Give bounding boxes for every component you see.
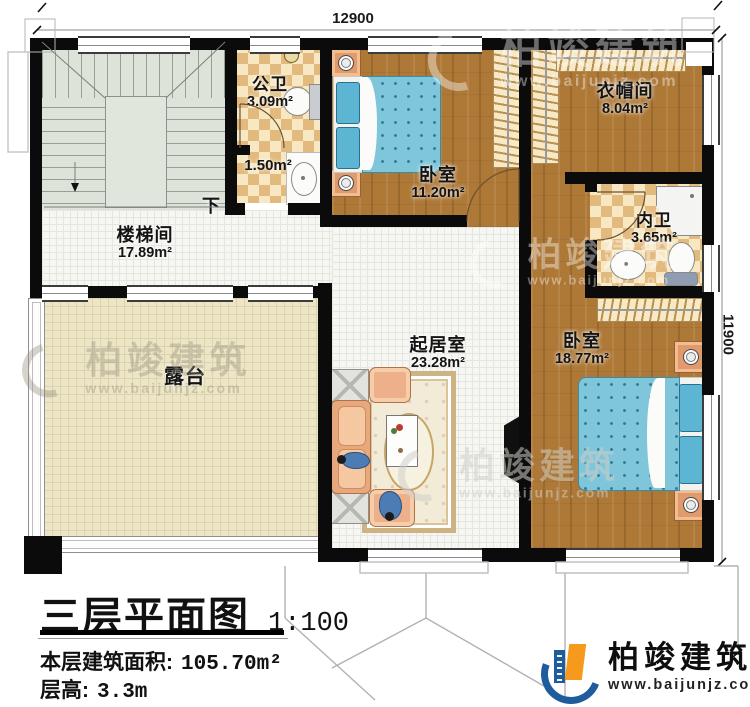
brand-logo: 柏竣建筑 www.baijunjz.com (540, 638, 750, 696)
brand-url: www.baijunjz.com (608, 677, 750, 693)
inner-toilet-bowl-icon (668, 242, 695, 276)
wall-segment (318, 283, 332, 548)
terrace-parapet-bottom (28, 536, 324, 553)
room-label-public-bath: 公卫 3.09m² (238, 76, 302, 111)
bed2-blanket-fold (647, 378, 665, 488)
room-name: 卧室 (400, 166, 476, 186)
terrace-parapet-left (28, 298, 45, 552)
nightstand-icon (331, 49, 361, 77)
window (42, 285, 88, 302)
side-table-icon (331, 491, 369, 524)
wall-segment (519, 38, 531, 548)
dimension-right: 11900 (720, 304, 737, 366)
wall-segment (30, 38, 42, 298)
wall-segment (318, 548, 368, 562)
wall-segment (225, 145, 250, 155)
room-name: 露台 (148, 366, 222, 388)
wall-segment (680, 548, 714, 562)
bedroom1-wardrobe (493, 46, 522, 168)
inner-toilet-base-icon (664, 272, 698, 286)
window (250, 36, 300, 54)
bedroom2-wardrobe (597, 298, 709, 322)
wall-column (24, 536, 62, 574)
window (368, 548, 482, 566)
sofa-cushion (338, 406, 366, 446)
title-underline (40, 630, 284, 635)
wall-segment (233, 286, 248, 298)
pillow-icon (679, 436, 703, 484)
room-label-inner-bath: 内卫 3.65m² (618, 212, 690, 247)
room-label-bedroom1: 卧室 11.20m² (400, 166, 476, 202)
coffee-table (386, 415, 418, 467)
wall-segment (585, 286, 714, 298)
room-label-living-room: 起居室 23.28m² (398, 336, 478, 372)
logo-building-blue-icon (554, 650, 565, 683)
wall-segment (225, 38, 237, 215)
room-label-bedroom2: 卧室 18.77m² (542, 332, 622, 368)
room-area: 8.04m² (575, 102, 675, 118)
wall-segment (288, 203, 332, 215)
floor-area-line: 本层建筑面积:105.70m² (40, 646, 282, 676)
pillow-icon (336, 127, 360, 169)
armchair-icon (369, 367, 411, 403)
flower-decor-dot (396, 424, 403, 431)
floor-area-label: 本层建筑面积: (40, 651, 173, 674)
room-name: 公卫 (238, 76, 302, 95)
room-area: 3.09m² (238, 95, 302, 111)
brand-logo-icon (540, 638, 598, 696)
room-name: 内卫 (618, 212, 690, 231)
wall-segment (585, 172, 597, 192)
wall-segment (482, 548, 566, 562)
title-underline-thin (38, 638, 288, 639)
inner-sink-drain-dot (624, 262, 628, 266)
window (78, 36, 190, 54)
cloakroom-rack-left (532, 44, 559, 164)
teacup-dot (398, 448, 403, 453)
wall-segment (300, 38, 368, 50)
brand-name: 柏竣建筑 (608, 642, 750, 673)
wall-segment (88, 286, 128, 298)
room-area: 1.50m² (238, 158, 298, 175)
room-name: 起居室 (398, 336, 478, 356)
window (368, 36, 482, 54)
sofa (331, 400, 371, 494)
wall-segment (320, 215, 467, 227)
inner-bath-sink-icon (610, 250, 646, 280)
window (248, 285, 313, 302)
window (702, 75, 720, 145)
floor-height-line: 层高:3.3m (40, 674, 147, 704)
terrace-floor (44, 298, 318, 538)
stair-flight-left (42, 98, 105, 204)
window (702, 245, 720, 292)
floor-height-value: 3.3m (97, 681, 147, 704)
room-name: 衣帽间 (575, 82, 675, 102)
wall-segment (482, 38, 714, 50)
room-area: 17.89m² (75, 246, 215, 262)
floor-plan-canvas: 楼梯间 17.89m² 下 公卫 3.09m² 1.50m² 卧室 11.20m… (0, 0, 750, 707)
wall-segment (190, 38, 250, 50)
room-name: 卧室 (542, 332, 622, 352)
room-label-cloakroom: 衣帽间 8.04m² (575, 82, 675, 118)
window (566, 548, 680, 566)
room-name: 楼梯间 (75, 226, 215, 246)
room-area: 3.65m² (618, 231, 690, 247)
pillow-icon (679, 384, 703, 432)
room-label-lobby: 1.50m² (238, 158, 298, 175)
pillow-icon (336, 82, 360, 124)
floor-height-label: 层高: (40, 679, 89, 702)
room-area: 11.20m² (400, 186, 476, 202)
room-area: 18.77m² (542, 352, 622, 368)
corner-flue-box (686, 42, 712, 66)
stair-flight-right (166, 98, 225, 204)
person-head-dot (337, 455, 346, 464)
flower-decor-dot (391, 428, 397, 434)
sliding-door (127, 285, 233, 302)
tv-icon (504, 416, 520, 484)
window (702, 395, 720, 500)
side-table-icon (331, 369, 369, 402)
nightstand-icon (331, 169, 361, 197)
sink-drain-dot (301, 176, 305, 180)
person-head-dot (385, 512, 394, 521)
wall-segment (225, 203, 245, 215)
stairs-down-label: 下 (198, 197, 224, 217)
room-label-stairwell: 楼梯间 17.89m² (75, 226, 215, 262)
shower-drain-dot (690, 194, 694, 198)
wall-segment (320, 38, 332, 203)
dimension-top: 12900 (318, 10, 388, 27)
stair-landing (105, 96, 167, 208)
room-area: 23.28m² (398, 356, 478, 372)
person-figure (342, 452, 370, 469)
floor-area-value: 105.70m² (181, 653, 282, 676)
room-label-terrace: 露台 (148, 366, 222, 388)
